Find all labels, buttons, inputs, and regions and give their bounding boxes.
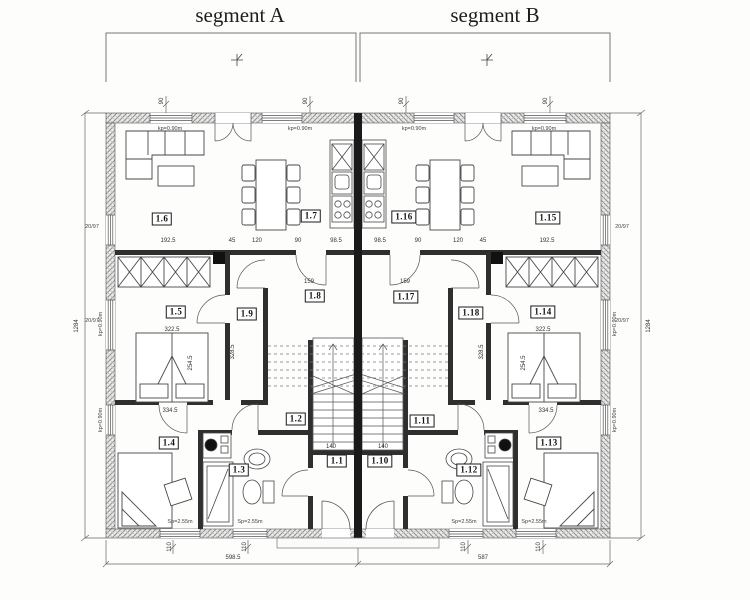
dimension-label: 90 bbox=[415, 238, 422, 244]
room-label-1-12: 1.12 bbox=[456, 464, 481, 477]
dimension-label: 110 bbox=[536, 542, 542, 552]
dimension-label: 254.5 bbox=[188, 355, 194, 370]
annotation-label: 20/97 bbox=[85, 224, 99, 230]
dimension-label: 192.5 bbox=[539, 238, 554, 244]
party-wall bbox=[354, 113, 362, 538]
dimension-label: 98.5 bbox=[330, 238, 342, 244]
room-label-1-9: 1.9 bbox=[237, 308, 257, 321]
room-label-1-2: 1.2 bbox=[286, 413, 306, 426]
room-label-1-11: 1.11 bbox=[410, 415, 435, 428]
dimension-label: 322.5 bbox=[164, 327, 179, 333]
segment-a-bracket bbox=[106, 33, 356, 82]
annotation-label: Sp=2.55m bbox=[451, 519, 476, 525]
annotation-label: Sp=2.55m bbox=[237, 519, 262, 525]
single-bed-icon bbox=[118, 453, 172, 528]
dimension-label: 598.5 bbox=[225, 555, 240, 561]
annotation-label: kp=0.90m bbox=[532, 126, 556, 132]
annotation-label: kp=0.90m bbox=[158, 126, 182, 132]
annotation-label: 20/97 bbox=[615, 318, 629, 324]
dimension-label: 90 bbox=[543, 98, 549, 105]
dimension-label: 159 bbox=[400, 279, 410, 285]
dimension-label: 120 bbox=[252, 238, 262, 244]
room-label-1-3: 1.3 bbox=[229, 464, 249, 477]
french-door-icon bbox=[215, 113, 251, 141]
dimension-label: 322.5 bbox=[535, 327, 550, 333]
dimension-label: 120 bbox=[453, 238, 463, 244]
toilet-icon bbox=[243, 480, 274, 504]
double-bed-icon bbox=[136, 333, 208, 402]
dimension-label: 110 bbox=[167, 542, 173, 552]
dimension-label: 254.5 bbox=[521, 355, 527, 370]
segment-b-bracket bbox=[360, 33, 610, 82]
room-label-1-6: 1.6 bbox=[152, 213, 172, 226]
annotation-label: Sp=2.55m bbox=[521, 519, 546, 525]
dimension-label: 90 bbox=[303, 98, 309, 105]
room-label-1-5: 1.5 bbox=[166, 306, 186, 319]
dimension-label: 328.5 bbox=[479, 344, 485, 359]
wardrobe-icon bbox=[118, 257, 210, 287]
dimension-label: 159 bbox=[304, 279, 314, 285]
room-label-1-17: 1.17 bbox=[393, 291, 418, 304]
annotation-label: 20/97 bbox=[615, 224, 629, 230]
room-label-1-15: 1.15 bbox=[535, 212, 560, 225]
dimension-label: 328.5 bbox=[230, 344, 236, 359]
coffee-table-icon bbox=[158, 166, 194, 186]
room-label-1-4: 1.4 bbox=[159, 437, 179, 450]
dimension-label: 1284 bbox=[74, 319, 80, 332]
dimension-label: 45 bbox=[229, 238, 236, 244]
room-label-1-18: 1.18 bbox=[458, 307, 483, 320]
washing-machine-icon bbox=[203, 433, 231, 458]
room-label-1-16: 1.16 bbox=[391, 211, 416, 224]
entrance-porch bbox=[277, 538, 439, 548]
room-label-1-7: 1.7 bbox=[301, 210, 321, 223]
dimension-label: 45 bbox=[480, 238, 487, 244]
dimension-label: 1284 bbox=[646, 319, 652, 332]
dimension-label: 192.5 bbox=[160, 238, 175, 244]
dimension-label: 90 bbox=[295, 238, 302, 244]
floor-plan-page: segment A segment B bbox=[0, 0, 750, 600]
dimension-label: 90 bbox=[159, 98, 165, 105]
dimension-label: 334.5 bbox=[162, 408, 177, 414]
annotation-label: kp=0.90m bbox=[288, 126, 312, 132]
annotation-label: kp=0.90m bbox=[612, 408, 618, 432]
dimension-label: 140 bbox=[378, 444, 388, 450]
dining-table-icon bbox=[242, 160, 300, 230]
segment-b-plan-mirrored bbox=[358, 113, 610, 545]
dimension-label: 140 bbox=[326, 444, 336, 450]
annotation-label: kp=0.90m bbox=[612, 312, 618, 336]
room-label-1-8: 1.8 bbox=[305, 290, 325, 303]
dimension-label: 98.5 bbox=[374, 238, 386, 244]
annotation-label: Sp=2.55m bbox=[167, 519, 192, 525]
annotation-label: kp=0.90m bbox=[98, 312, 104, 336]
dimension-label: 90 bbox=[399, 98, 405, 105]
segment-a-plan bbox=[106, 113, 358, 545]
annotation-label: 20/97 bbox=[85, 318, 99, 324]
dimension-label: 110 bbox=[242, 542, 248, 552]
room-label-1-10: 1.10 bbox=[367, 455, 392, 468]
room-label-1-1: 1.1 bbox=[327, 455, 347, 468]
room-label-1-14: 1.14 bbox=[530, 306, 555, 319]
dimension-label: 334.5 bbox=[538, 408, 553, 414]
dimension-label: 110 bbox=[461, 542, 467, 552]
floor-plan-drawing bbox=[0, 0, 750, 600]
room-label-1-13: 1.13 bbox=[536, 437, 561, 450]
annotation-label: kp=0.90m bbox=[402, 126, 426, 132]
flue-icon bbox=[213, 252, 225, 264]
kitchen-counter-icon bbox=[330, 140, 354, 228]
dimension-label: 587 bbox=[478, 555, 488, 561]
annotation-label: kp=0.90m bbox=[98, 408, 104, 432]
